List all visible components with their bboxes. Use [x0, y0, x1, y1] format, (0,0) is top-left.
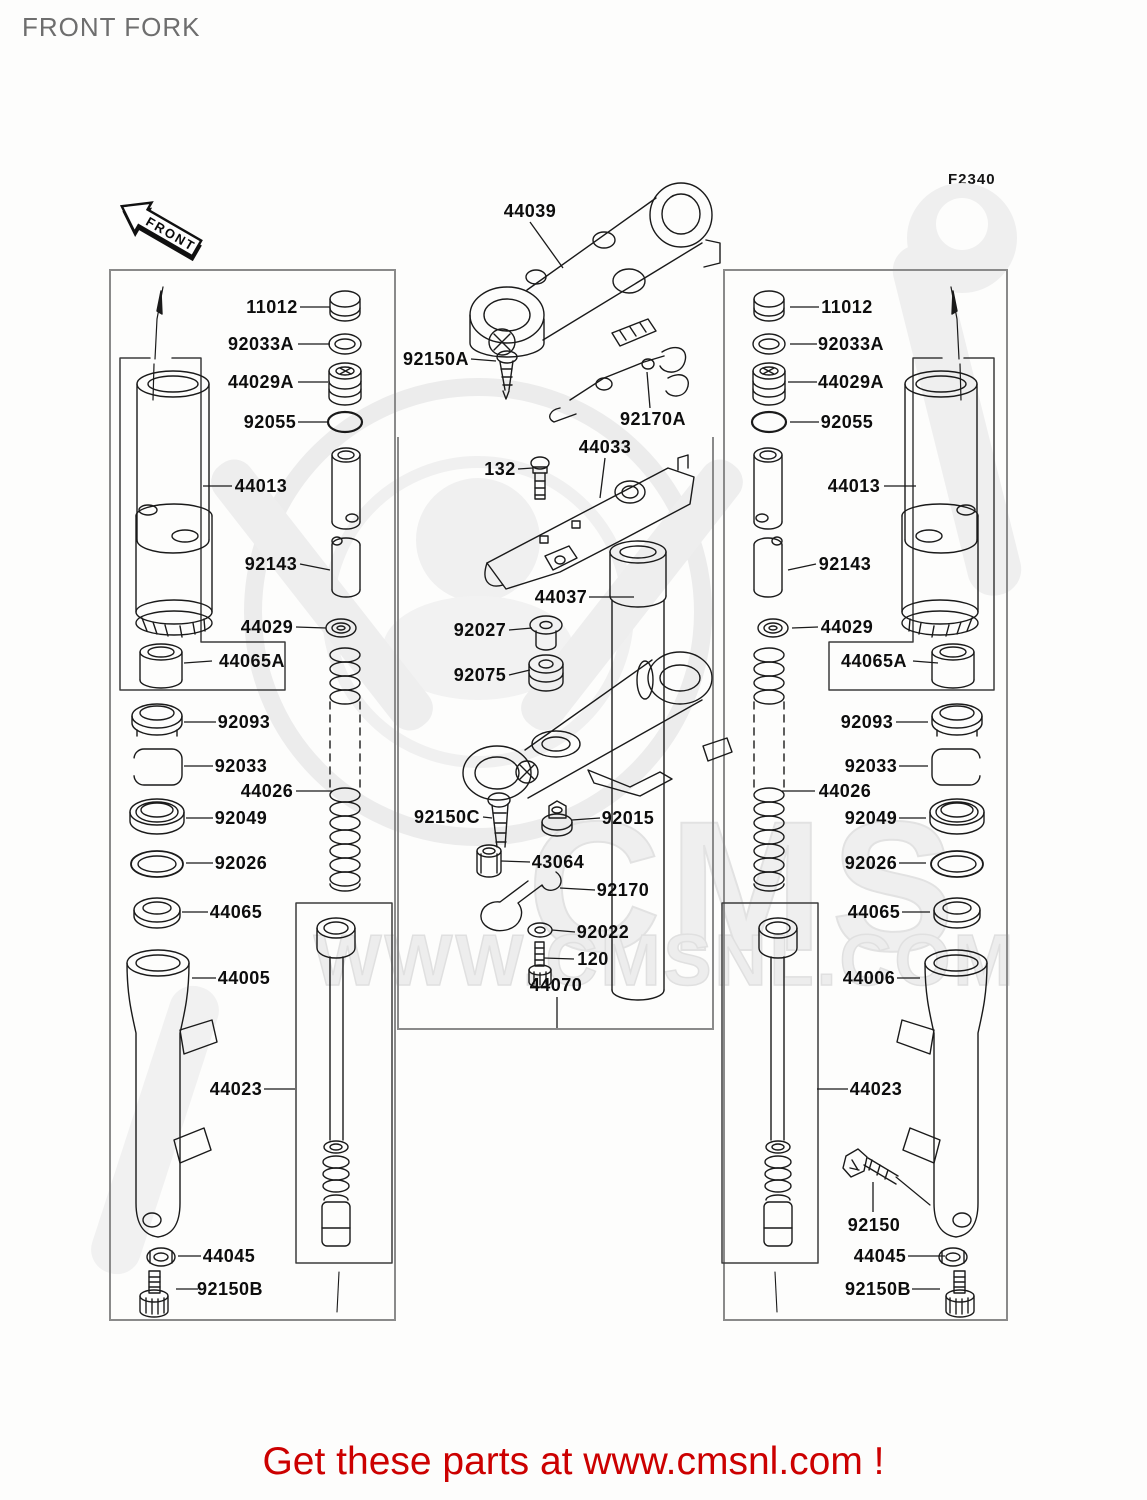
part-label-44006: 44006	[843, 968, 896, 988]
part-label-92033A: 92033A	[228, 334, 294, 354]
leader-line-92150C	[483, 817, 492, 818]
part-label-44029: 44029	[821, 617, 874, 637]
part-label-92170A: 92170A	[620, 409, 686, 429]
part-label-92143: 92143	[245, 554, 298, 574]
part-label-92022: 92022	[577, 922, 630, 942]
part-label-92170: 92170	[597, 880, 650, 900]
part-label-44013: 44013	[828, 476, 881, 496]
part-label-92150C: 92150C	[414, 807, 480, 827]
leader-line-44065A	[913, 661, 938, 663]
cmsnl-banner-link[interactable]: Get these parts at www.cmsnl.com !	[0, 1440, 1147, 1484]
part-label-132: 132	[484, 459, 516, 479]
diagram-canvas: CMS WWW.CMSNL.COM	[0, 0, 1147, 1500]
leader-line-44039	[530, 222, 563, 268]
part-label-92143: 92143	[819, 554, 872, 574]
part-label-92026: 92026	[215, 853, 268, 873]
part-label-92015: 92015	[602, 808, 655, 828]
part-label-44065A: 44065A	[841, 651, 907, 671]
part-label-44065: 44065	[848, 902, 901, 922]
part-label-92093: 92093	[218, 712, 271, 732]
watermark-url-text: WWW.CMSNL.COM	[314, 921, 1017, 1001]
part-label-44005: 44005	[218, 968, 271, 988]
part-label-44070: 44070	[530, 975, 583, 995]
part-label-44026: 44026	[241, 781, 294, 801]
part-label-120: 120	[577, 949, 609, 969]
part-label-92055: 92055	[244, 412, 297, 432]
part-label-44023: 44023	[210, 1079, 263, 1099]
part-label-92049: 92049	[215, 808, 268, 828]
part-label-44045: 44045	[203, 1246, 256, 1266]
leader-line-43064	[501, 861, 530, 862]
part-label-92075: 92075	[454, 665, 507, 685]
front-arrow: FRONT	[112, 191, 208, 268]
part-label-44039: 44039	[504, 201, 557, 221]
part-label-44013: 44013	[235, 476, 288, 496]
leader-line-44033	[600, 458, 605, 498]
part-label-44029: 44029	[241, 617, 294, 637]
leader-line-44029	[792, 627, 818, 628]
part-label-44045: 44045	[854, 1246, 907, 1266]
leader-line-92143	[788, 564, 816, 570]
part-label-92093: 92093	[841, 712, 894, 732]
part-label-92033: 92033	[845, 756, 898, 776]
part-label-92033A: 92033A	[818, 334, 884, 354]
part-label-92150B: 92150B	[197, 1279, 263, 1299]
parts-fiche-page: FRONT FORK F2340 CMS WWW.CMSNL.COM	[0, 0, 1147, 1500]
part-label-44065A: 44065A	[219, 651, 285, 671]
part-label-44065: 44065	[210, 902, 263, 922]
part-label-44033: 44033	[579, 437, 632, 457]
part-label-92049: 92049	[845, 808, 898, 828]
part-label-43064: 43064	[532, 852, 585, 872]
leader-line-92150A	[471, 359, 496, 361]
part-label-92150B: 92150B	[845, 1279, 911, 1299]
part-label-92150: 92150	[848, 1215, 901, 1235]
part-label-44029A: 44029A	[228, 372, 294, 392]
bolt-92150-drawing	[843, 1149, 930, 1205]
part-label-92027: 92027	[454, 620, 507, 640]
part-label-44029A: 44029A	[818, 372, 884, 392]
part-label-11012: 11012	[821, 297, 873, 317]
nut-43064-drawing	[477, 845, 501, 877]
leader-line-92170A	[647, 372, 650, 408]
part-label-92150A: 92150A	[403, 349, 469, 369]
part-label-11012: 11012	[246, 297, 298, 317]
part-label-92055: 92055	[821, 412, 874, 432]
part-label-92026: 92026	[845, 853, 898, 873]
leader-line-44065A	[184, 661, 212, 663]
part-label-44023: 44023	[850, 1079, 903, 1099]
part-label-92033: 92033	[215, 756, 268, 776]
part-label-44037: 44037	[535, 587, 588, 607]
part-label-44026: 44026	[819, 781, 872, 801]
